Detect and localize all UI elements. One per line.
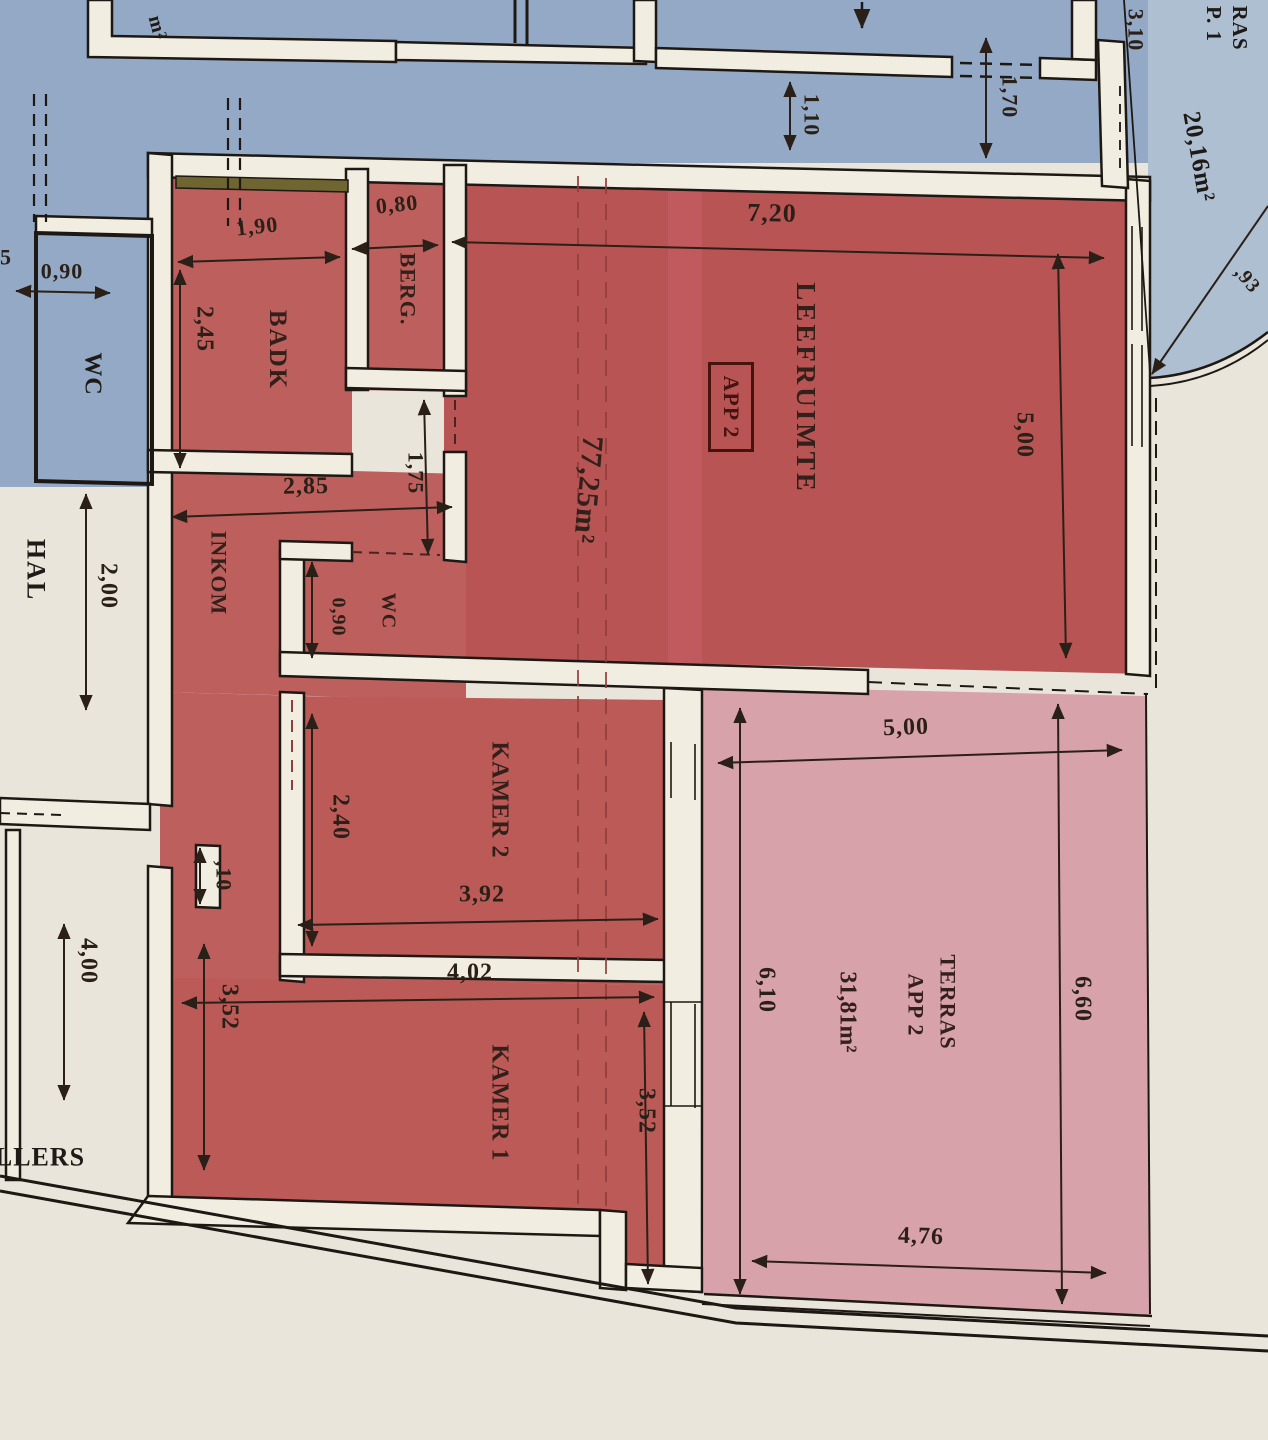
dim-blue-gap-2: 1,10 (800, 94, 823, 137)
dim-passage: 1,75 (404, 452, 427, 495)
dim-kamer1-height-left: 3,52 (216, 984, 241, 1030)
dim-wall-stub: ,10 (212, 861, 235, 892)
dim-wc-red-width: 0,90 (328, 598, 349, 637)
room-label-berg: BERG. (396, 253, 419, 326)
dim-hal-width: 2,00 (95, 563, 120, 609)
room-label-wc-blue: WC (79, 352, 104, 395)
dim-badk-width: 1,90 (235, 212, 280, 239)
room-label-kamer1: KAMER 1 (486, 1045, 511, 1162)
dim-terras-width-bottom: 4,76 (898, 1224, 945, 1251)
apartment-number-box: APP 2 (708, 362, 754, 452)
dim-terras-height-left: 6,10 (753, 967, 778, 1013)
room-label-terras-line2: APP 2 (904, 973, 927, 1036)
dim-wc-blue-width: 0,90 (41, 259, 84, 282)
dim-terras-width-top: 5,00 (883, 715, 930, 742)
area-label-terras-app2: 31,81m² (834, 971, 859, 1052)
room-label-hal: HAL (22, 539, 49, 601)
dim-terras-height-right: 6,60 (1069, 976, 1094, 1022)
floorplan-page: LEEFRUIMTE APP 2 77,25m² BADK BERG. INKO… (0, 0, 1268, 1440)
dim-kamer2-width: 3,92 (459, 882, 505, 907)
dim-leefruimte-height: 5,00 (1011, 412, 1036, 458)
dim-berg-width: 0,80 (375, 190, 420, 217)
room-label-terras-app1-line1: RAS (1229, 5, 1251, 50)
dim-kamer2-height: 2,40 (327, 794, 352, 840)
room-label-badk: BADK (264, 310, 290, 390)
room-label-kelders-partial: LLERS (0, 1143, 85, 1170)
room-label-leefruimte: LEEFRUIMTE (792, 282, 820, 494)
dim-badk-height: 2,45 (191, 306, 216, 352)
dim-blue-gap-1: 1,70 (998, 76, 1021, 119)
room-label-wc-red: WC (378, 593, 399, 629)
room-label-terras-app1-line2: P. 1 (1203, 6, 1225, 42)
room-label-kamer2: KAMER 2 (486, 742, 511, 859)
room-label-inkom: INKOM (207, 531, 230, 615)
dim-left-edge-partial: 5 (0, 245, 12, 268)
dim-blue-top-right: 3,10 (1124, 9, 1147, 52)
dim-top-width: 7,20 (747, 199, 797, 227)
dim-hal-lower-height: 4,00 (75, 938, 100, 984)
dim-kamer1-height-right: 3,52 (633, 1088, 658, 1134)
floorplan-drawing (0, 0, 1268, 1440)
dim-inkom-width: 2,85 (283, 474, 329, 500)
room-label-terras-line1: TERRAS (936, 954, 959, 1049)
dim-kamer1-width: 4,02 (447, 960, 493, 985)
